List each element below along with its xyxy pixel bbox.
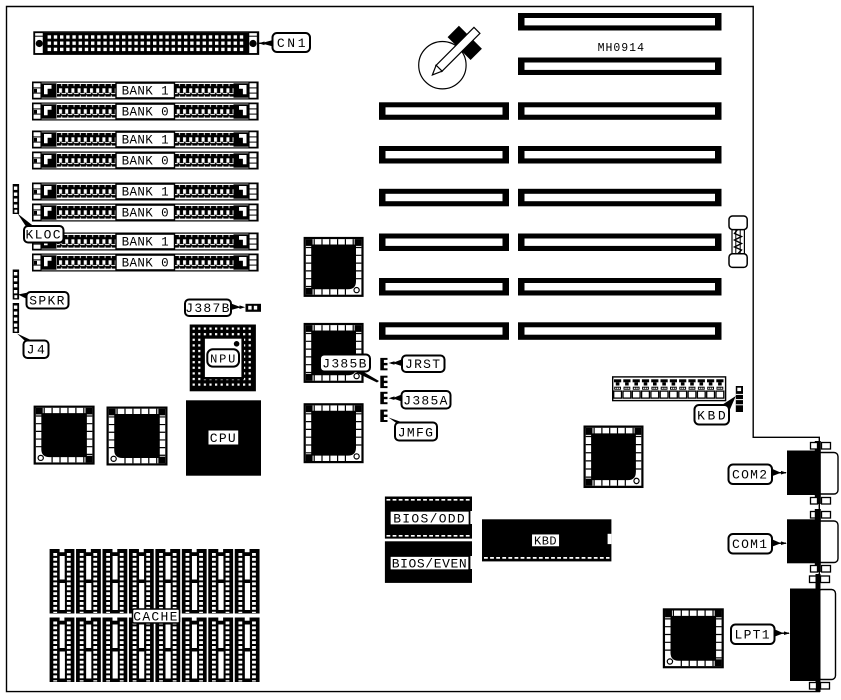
svg-text:BIOS/EVEN: BIOS/EVEN: [392, 557, 468, 572]
svg-text:J385B: J385B: [322, 356, 368, 371]
svg-text:COM1: COM1: [732, 537, 768, 552]
svg-text:MH0914: MH0914: [598, 42, 645, 55]
svg-text:BANK 0: BANK 0: [122, 207, 169, 221]
svg-text:BANK 0: BANK 0: [122, 155, 169, 169]
svg-text:KBD: KBD: [534, 535, 557, 549]
svg-text:KBD: KBD: [697, 409, 728, 424]
svg-text:BANK 0: BANK 0: [122, 106, 169, 120]
svg-text:BANK 1: BANK 1: [122, 186, 169, 200]
svg-text:J385A: J385A: [403, 393, 449, 408]
svg-text:BANK 0: BANK 0: [122, 257, 169, 271]
svg-text:BANK 1: BANK 1: [122, 236, 169, 250]
svg-text:J387B: J387B: [185, 301, 231, 316]
svg-text:JMFG: JMFG: [398, 425, 434, 440]
svg-text:CACHE: CACHE: [133, 609, 179, 624]
svg-text:BANK 1: BANK 1: [122, 134, 169, 148]
svg-text:COM2: COM2: [732, 468, 768, 483]
svg-text:SPKR: SPKR: [29, 294, 65, 309]
svg-text:LPT1: LPT1: [734, 628, 770, 643]
svg-text:CN1: CN1: [277, 36, 308, 51]
svg-text:KLOC: KLOC: [25, 228, 61, 243]
svg-text:CPU: CPU: [210, 431, 237, 446]
svg-text:BIOS/ODD: BIOS/ODD: [393, 512, 466, 527]
svg-text:BANK 1: BANK 1: [122, 85, 169, 99]
svg-text:J4: J4: [27, 343, 48, 358]
svg-text:NPU: NPU: [210, 353, 237, 367]
svg-text:JRST: JRST: [405, 357, 441, 372]
